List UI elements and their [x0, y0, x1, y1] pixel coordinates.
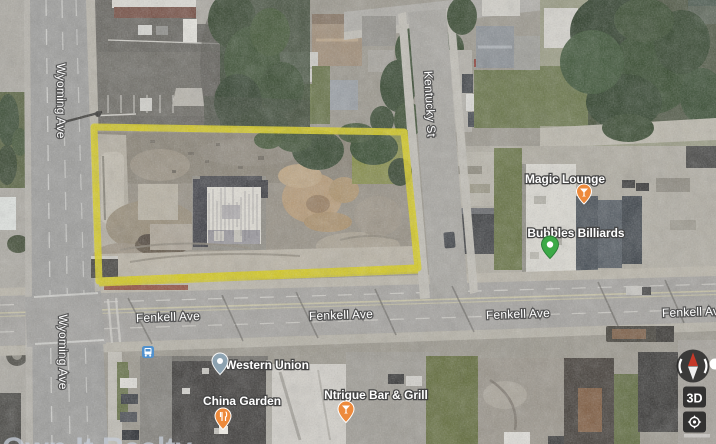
svg-text:Wyoming Ave: Wyoming Ave: [56, 314, 70, 389]
svg-text:Own It Realty: Own It Realty: [2, 432, 192, 444]
svg-text:Fenkell Ave: Fenkell Ave: [136, 309, 201, 325]
svg-text:Fenkell Av: Fenkell Av: [662, 304, 716, 320]
svg-text:Magic Lounge: Magic Lounge: [525, 172, 605, 186]
svg-text:Fenkell Ave: Fenkell Ave: [486, 306, 551, 322]
svg-text:Ntrigue Bar & Grill: Ntrigue Bar & Grill: [324, 388, 428, 402]
svg-text:China Garden: China Garden: [203, 394, 281, 408]
svg-text:Western Union: Western Union: [225, 358, 309, 372]
svg-text:Wyoming Ave: Wyoming Ave: [54, 63, 68, 138]
svg-text:Bubbles Billiards: Bubbles Billiards: [527, 226, 625, 240]
svg-text:3D: 3D: [687, 392, 703, 406]
svg-text:Fenkell Ave: Fenkell Ave: [309, 307, 374, 323]
